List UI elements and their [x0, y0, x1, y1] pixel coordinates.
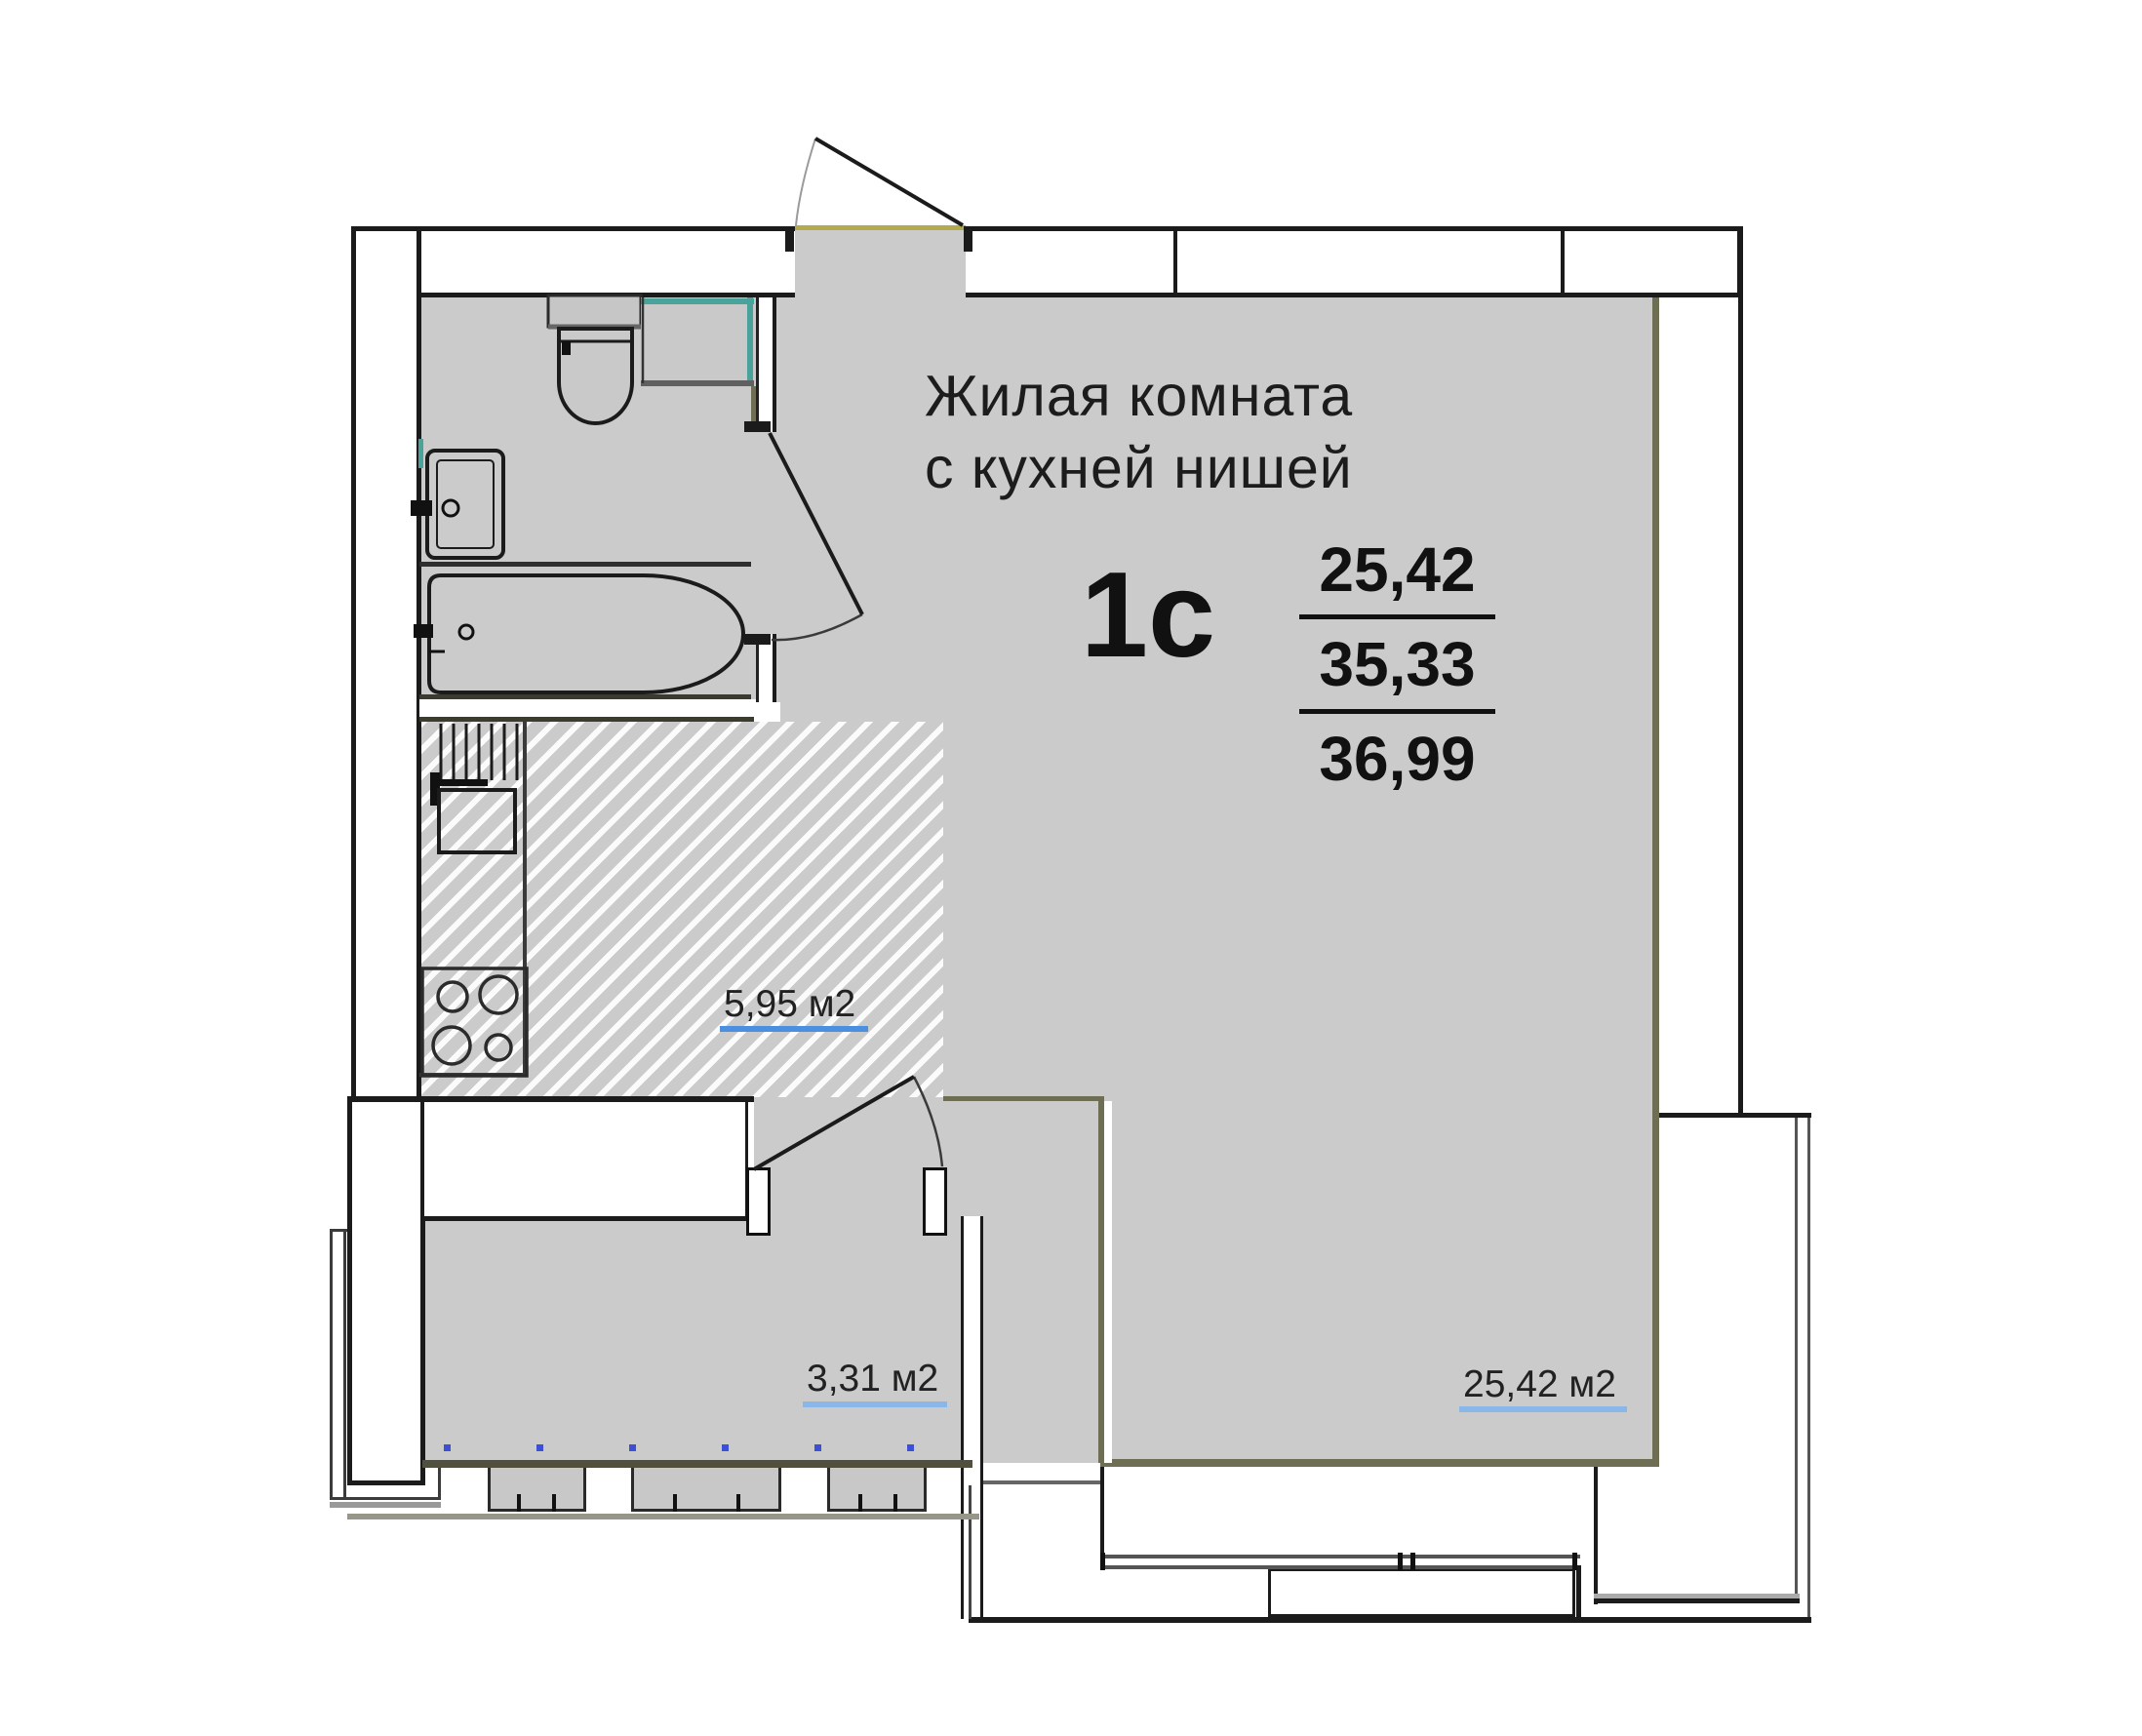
area-living-value: 25,42	[1299, 525, 1495, 614]
kitchen-sink-fixture	[430, 772, 515, 852]
loggia-area-label[interactable]: 3,31 м2	[807, 1358, 938, 1401]
living-area-underline	[1459, 1406, 1627, 1412]
bathroom-sink-fixture	[411, 451, 503, 558]
bathtub-fixture	[414, 575, 743, 692]
loggia-area-underline	[803, 1401, 947, 1407]
bathroom-door-swing	[770, 433, 862, 640]
kitchen-area-label[interactable]: 5,95 м2	[724, 983, 855, 1026]
room-title-line2: с кухней нишей	[925, 435, 1353, 501]
entrance-door-swing	[796, 138, 963, 225]
toilet-fixture	[548, 296, 641, 423]
stove-fixture	[422, 968, 527, 1076]
apartment-area-stack: 25,42 35,33 36,99	[1299, 525, 1495, 804]
apartment-type-code: 1с	[1081, 546, 1215, 685]
teal-cabinet	[641, 297, 754, 386]
area-main-value: 35,33	[1299, 619, 1495, 709]
room-title-line1: Жилая комната	[925, 363, 1353, 429]
floor-plan: Жилая комната с кухней нишей 1с 25,42 35…	[0, 0, 2142, 1736]
living-area-label[interactable]: 25,42 м2	[1463, 1363, 1616, 1406]
kitchen-area-underline	[720, 1026, 868, 1032]
area-total-value: 36,99	[1299, 714, 1495, 804]
hall-door-swing	[754, 1077, 942, 1169]
kitchen-grille	[441, 724, 517, 780]
fixtures-layer	[0, 0, 2142, 1736]
